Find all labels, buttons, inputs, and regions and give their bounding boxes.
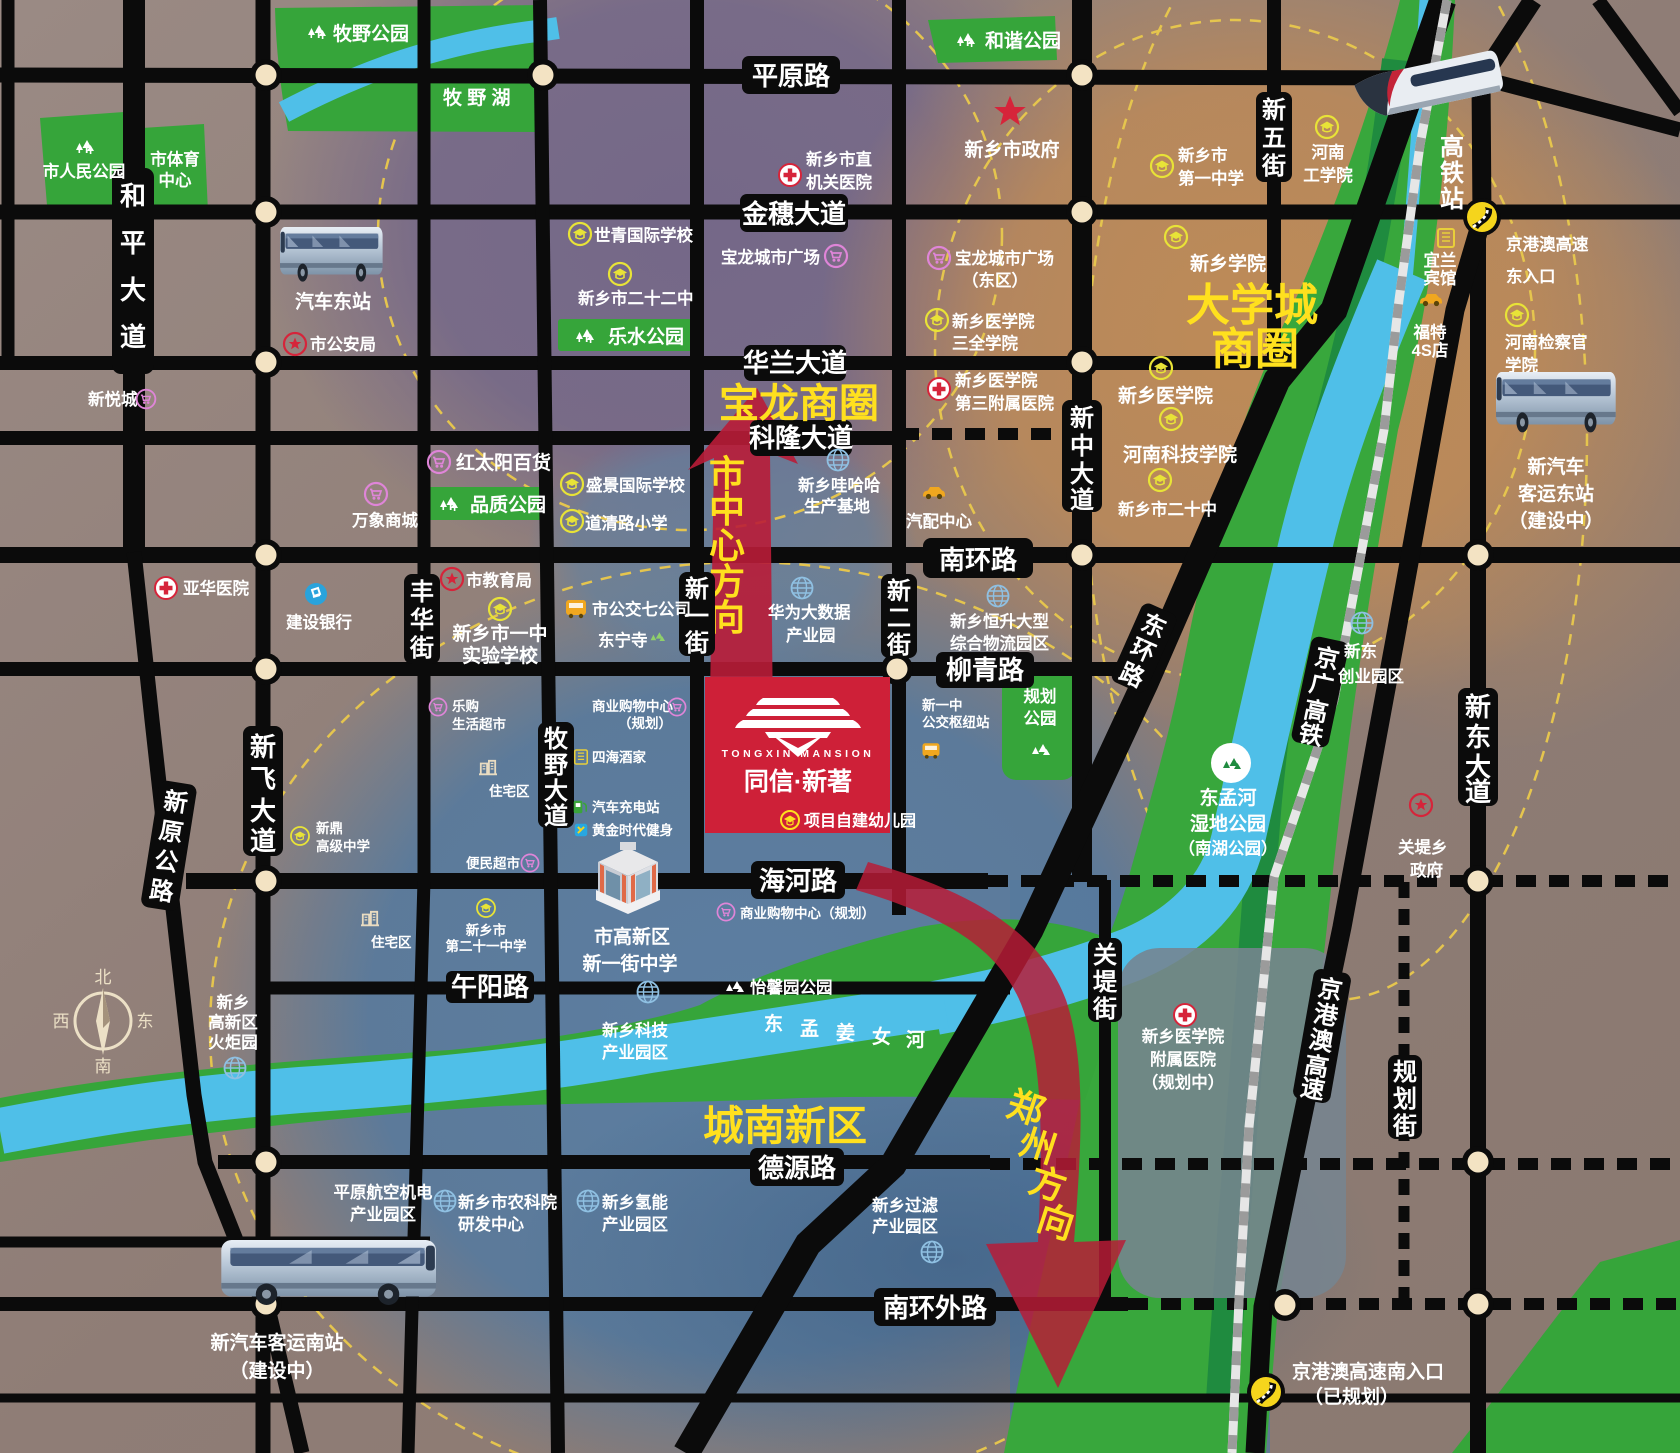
- svg-text:新汽车客运南站: 新汽车客运南站: [210, 1331, 343, 1354]
- svg-text:市公交七公司: 市公交七公司: [592, 599, 691, 619]
- svg-text:市教育局: 市教育局: [466, 570, 532, 590]
- svg-text:市高新区: 市高新区: [594, 925, 670, 948]
- svg-text:住宅区: 住宅区: [371, 934, 412, 950]
- svg-text:新乡市二十中: 新乡市二十中: [1118, 499, 1217, 519]
- svg-text:大: 大: [120, 275, 146, 305]
- svg-text:华: 华: [410, 606, 434, 634]
- svg-text:西: 西: [53, 1012, 70, 1031]
- svg-text:生产基地: 生产基地: [804, 496, 871, 516]
- svg-text:新乡科技: 新乡科技: [602, 1020, 669, 1040]
- svg-text:第三附属医院: 第三附属医院: [955, 393, 1055, 413]
- svg-text:建设银行: 建设银行: [286, 612, 353, 632]
- svg-text:市人民公园: 市人民公园: [43, 161, 126, 181]
- svg-text:新乡市直: 新乡市直: [806, 149, 873, 169]
- svg-text:客运东站: 客运东站: [1518, 482, 1594, 505]
- svg-text:住宅区: 住宅区: [489, 783, 530, 799]
- svg-text:心: 心: [709, 525, 745, 566]
- svg-text:中: 中: [709, 489, 745, 530]
- svg-text:和: 和: [120, 181, 146, 211]
- svg-text:海河路: 海河路: [759, 866, 838, 896]
- svg-text:TONGXIN MANSION: TONGXIN MANSION: [722, 748, 875, 760]
- svg-text:盛景国际学校: 盛景国际学校: [586, 475, 686, 495]
- svg-text:商业购物中心: 商业购物中心: [592, 698, 673, 714]
- svg-text:产业园: 产业园: [786, 625, 836, 645]
- svg-text:华为大数据: 华为大数据: [768, 602, 851, 622]
- svg-text:综合物流园区: 综合物流园区: [950, 633, 1050, 653]
- svg-text:街: 街: [1392, 1112, 1417, 1140]
- svg-text:产业园区: 产业园区: [602, 1042, 669, 1062]
- svg-text:新: 新: [887, 577, 911, 605]
- svg-text:市体育: 市体育: [150, 149, 200, 169]
- svg-text:便民超市: 便民超市: [466, 855, 520, 871]
- svg-text:孟: 孟: [800, 1018, 819, 1040]
- svg-text:街: 街: [684, 629, 709, 657]
- svg-text:女: 女: [872, 1025, 891, 1048]
- svg-text:和谐公园: 和谐公园: [985, 29, 1061, 52]
- svg-text:同信·新著: 同信·新著: [744, 767, 852, 796]
- svg-text:堤: 堤: [1093, 969, 1118, 996]
- svg-text:新乡市二十二中: 新乡市二十二中: [578, 288, 694, 308]
- svg-text:平原路: 平原路: [752, 61, 831, 91]
- svg-text:高新区: 高新区: [208, 1012, 258, 1032]
- svg-text:道: 道: [120, 322, 146, 352]
- svg-text:科隆大道: 科隆大道: [749, 423, 853, 453]
- svg-text:关堤乡: 关堤乡: [1398, 837, 1448, 857]
- svg-text:宝龙城市广场: 宝龙城市广场: [955, 248, 1054, 268]
- svg-text:（东区）: （东区）: [962, 270, 1028, 290]
- svg-text:铁: 铁: [1440, 160, 1464, 187]
- svg-text:中心: 中心: [159, 170, 193, 190]
- svg-text:（南湖公园）: （南湖公园）: [1179, 838, 1278, 858]
- svg-text:新一中: 新一中: [922, 697, 963, 713]
- svg-text:（规划）: （规划）: [618, 715, 672, 731]
- svg-text:新乡市一中: 新乡市一中: [452, 622, 547, 645]
- svg-text:东: 东: [764, 1012, 783, 1035]
- svg-text:宝龙城市广场: 宝龙城市广场: [721, 247, 820, 267]
- svg-text:道清路小学: 道清路小学: [585, 513, 668, 533]
- svg-text:城南新区: 城南新区: [703, 1103, 867, 1149]
- svg-text:速: 速: [1298, 1074, 1326, 1105]
- svg-text:规: 规: [1393, 1059, 1417, 1086]
- svg-text:（规划中）: （规划中）: [1142, 1072, 1225, 1092]
- svg-text:德源路: 德源路: [758, 1153, 837, 1183]
- svg-text:道: 道: [544, 802, 568, 830]
- svg-text:平: 平: [120, 228, 146, 258]
- svg-text:街: 街: [886, 631, 911, 659]
- svg-text:政府: 政府: [1410, 860, 1444, 880]
- svg-text:万象商城: 万象商城: [351, 510, 419, 530]
- svg-text:研发中心: 研发中心: [458, 1214, 525, 1234]
- svg-text:汽车充电站: 汽车充电站: [592, 799, 660, 815]
- svg-text:新东: 新东: [1344, 641, 1377, 661]
- svg-text:金穗大道: 金穗大道: [741, 199, 846, 229]
- svg-text:街: 街: [1092, 995, 1117, 1023]
- svg-text:河南科技学院: 河南科技学院: [1123, 443, 1237, 466]
- svg-text:新乡学院: 新乡学院: [1190, 252, 1266, 275]
- svg-text:新乡: 新乡: [217, 992, 250, 1012]
- svg-text:飞: 飞: [250, 764, 276, 794]
- svg-text:高级中学: 高级中学: [316, 838, 370, 854]
- svg-text:公园: 公园: [1024, 709, 1057, 728]
- svg-text:东入口: 东入口: [1506, 266, 1556, 286]
- svg-text:河: 河: [906, 1029, 925, 1051]
- svg-text:工学院: 工学院: [1303, 165, 1353, 185]
- svg-text:品质公园: 品质公园: [470, 494, 546, 516]
- svg-text:商圈: 商圈: [1211, 325, 1299, 374]
- svg-text:附属医院: 附属医院: [1150, 1049, 1217, 1069]
- svg-text:东: 东: [137, 1012, 154, 1031]
- svg-text:高: 高: [1440, 133, 1464, 161]
- svg-text:原: 原: [157, 817, 185, 847]
- svg-text:四海酒家: 四海酒家: [592, 749, 646, 765]
- svg-text:福特: 福特: [1413, 322, 1448, 342]
- svg-text:北: 北: [95, 968, 112, 987]
- svg-text:新乡市农科院: 新乡市农科院: [458, 1192, 558, 1212]
- svg-text:黄金时代健身: 黄金时代健身: [592, 822, 673, 838]
- svg-text:项目自建幼儿园: 项目自建幼儿园: [804, 811, 916, 830]
- svg-text:新乡医学院: 新乡医学院: [1118, 384, 1213, 407]
- svg-text:（已规划）: （已规划）: [1304, 1385, 1399, 1408]
- svg-text:道: 道: [250, 826, 276, 856]
- svg-text:（建设中）: （建设中）: [229, 1359, 324, 1382]
- svg-text:南: 南: [95, 1057, 112, 1076]
- svg-text:柳青路: 柳青路: [946, 655, 1025, 685]
- svg-text:实验学校: 实验学校: [462, 644, 539, 667]
- svg-text:产业园区: 产业园区: [872, 1216, 939, 1236]
- svg-text:新乡氢能: 新乡氢能: [602, 1192, 669, 1212]
- svg-text:宝龙商圈: 宝龙商圈: [719, 382, 879, 426]
- svg-text:站: 站: [1440, 186, 1464, 213]
- svg-text:新乡医学院: 新乡医学院: [952, 311, 1035, 331]
- svg-text:二: 二: [887, 605, 911, 632]
- svg-text:牧野公园: 牧野公园: [333, 22, 409, 45]
- svg-text:新一街中学: 新一街中学: [582, 952, 677, 975]
- svg-text:宜兰: 宜兰: [1424, 250, 1457, 270]
- svg-text:华兰大道: 华兰大道: [743, 348, 847, 378]
- svg-text:午阳路: 午阳路: [451, 972, 530, 1002]
- svg-text:新: 新: [1465, 692, 1491, 722]
- svg-text:新: 新: [162, 787, 190, 818]
- svg-text:亚华医院: 亚华医院: [183, 578, 250, 598]
- svg-text:道: 道: [1070, 486, 1094, 514]
- svg-text:新乡医学院: 新乡医学院: [1142, 1026, 1225, 1046]
- svg-text:规划: 规划: [1024, 686, 1057, 706]
- svg-text:大: 大: [1070, 461, 1094, 488]
- svg-text:红太阳百货: 红太阳百货: [456, 451, 551, 474]
- svg-text:街: 街: [409, 634, 434, 662]
- svg-text:生活超市: 生活超市: [452, 716, 506, 732]
- svg-text:五: 五: [1262, 125, 1286, 152]
- svg-text:新: 新: [1262, 96, 1286, 124]
- svg-text:三全学院: 三全学院: [952, 333, 1019, 353]
- svg-text:4S店: 4S店: [1412, 341, 1449, 360]
- svg-text:（建设中）: （建设中）: [1508, 509, 1603, 532]
- svg-text:新悦城: 新悦城: [88, 389, 138, 409]
- svg-text:平原航空机电: 平原航空机电: [334, 1182, 434, 1202]
- svg-text:火炬园: 火炬园: [208, 1032, 258, 1052]
- svg-text:市公安局: 市公安局: [310, 334, 376, 354]
- svg-text:新: 新: [685, 575, 709, 603]
- svg-text:公交枢纽站: 公交枢纽站: [922, 714, 990, 730]
- svg-text:新乡市: 新乡市: [466, 922, 507, 938]
- svg-text:湿地公园: 湿地公园: [1190, 812, 1266, 835]
- svg-text:新乡哇哈哈: 新乡哇哈哈: [798, 475, 881, 495]
- svg-text:关: 关: [1093, 942, 1117, 969]
- svg-text:东宁寺: 东宁寺: [598, 630, 648, 650]
- svg-text:产业园区: 产业园区: [350, 1204, 417, 1224]
- svg-text:新汽车: 新汽车: [1527, 455, 1584, 478]
- svg-text:新: 新: [250, 732, 276, 762]
- svg-text:牧 野 湖: 牧 野 湖: [443, 86, 511, 109]
- svg-text:街: 街: [1261, 152, 1286, 180]
- svg-text:京港澳高速南入口: 京港澳高速南入口: [1292, 1360, 1444, 1383]
- svg-text:第二十一中学: 第二十一中学: [446, 938, 527, 954]
- svg-text:新鼎: 新鼎: [316, 820, 343, 836]
- svg-text:第一中学: 第一中学: [1178, 168, 1244, 188]
- svg-text:牧: 牧: [544, 725, 569, 753]
- svg-text:汽配中心: 汽配中心: [906, 511, 973, 531]
- svg-text:河南检察官: 河南检察官: [1505, 332, 1588, 352]
- svg-text:东孟河: 东孟河: [1199, 786, 1256, 809]
- svg-text:世青国际学校: 世青国际学校: [594, 225, 694, 245]
- svg-text:河南: 河南: [1312, 142, 1345, 162]
- svg-text:新乡市: 新乡市: [1178, 145, 1228, 165]
- svg-text:乐购: 乐购: [452, 698, 479, 714]
- svg-text:新乡医学院: 新乡医学院: [955, 370, 1038, 390]
- svg-text:怡馨园公园: 怡馨园公园: [750, 977, 833, 997]
- svg-text:创业园区: 创业园区: [1337, 666, 1405, 686]
- svg-text:丰: 丰: [410, 579, 434, 606]
- svg-text:宾馆: 宾馆: [1424, 268, 1457, 288]
- svg-text:市: 市: [709, 453, 745, 494]
- svg-text:汽车东站: 汽车东站: [295, 290, 371, 313]
- svg-text:新: 新: [1070, 404, 1094, 432]
- svg-text:大: 大: [250, 796, 276, 826]
- svg-text:大学城: 大学城: [1186, 281, 1318, 330]
- svg-text:道: 道: [1465, 777, 1491, 807]
- svg-text:京港澳高速: 京港澳高速: [1506, 234, 1589, 254]
- svg-text:东: 东: [1465, 722, 1491, 752]
- svg-text:大: 大: [544, 778, 568, 805]
- svg-text:商业购物中心（规划）: 商业购物中心（规划）: [740, 905, 875, 921]
- svg-text:机关医院: 机关医院: [806, 172, 873, 192]
- svg-text:南环路: 南环路: [939, 545, 1018, 575]
- svg-text:产业园区: 产业园区: [602, 1214, 669, 1234]
- svg-text:姜: 姜: [836, 1021, 855, 1044]
- svg-text:新乡市政府: 新乡市政府: [964, 138, 1059, 161]
- svg-text:乐水公园: 乐水公园: [608, 326, 684, 348]
- svg-text:划: 划: [1393, 1086, 1417, 1113]
- svg-text:野: 野: [544, 752, 568, 779]
- svg-text:新乡恒升大型: 新乡恒升大型: [950, 611, 1050, 631]
- svg-text:中: 中: [1070, 433, 1094, 460]
- svg-text:南环外路: 南环外路: [883, 1293, 988, 1323]
- svg-text:新乡过滤: 新乡过滤: [872, 1195, 939, 1215]
- svg-text:公: 公: [152, 847, 180, 877]
